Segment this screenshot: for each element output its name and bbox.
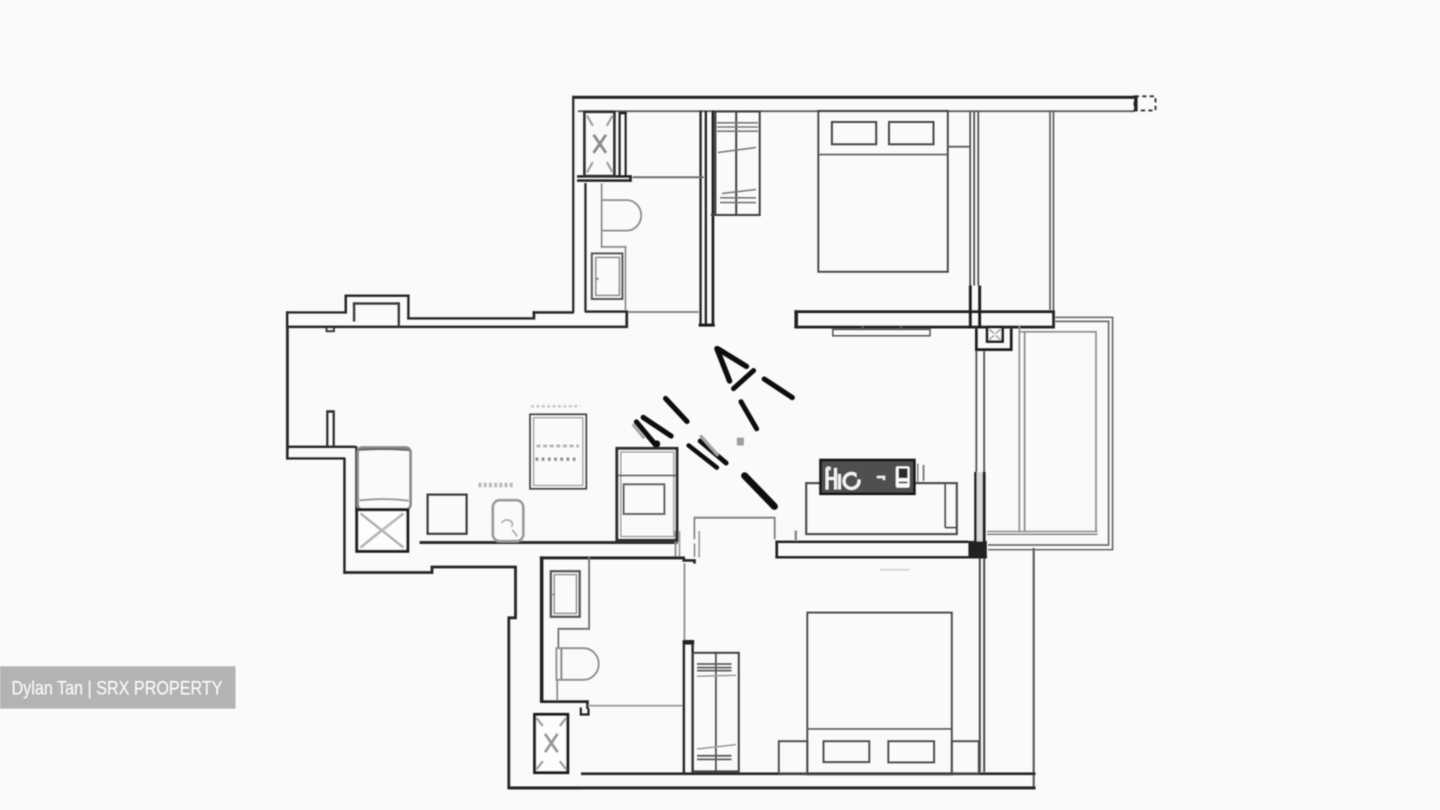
svg-text:Dylan Tan | SRX PROPERTY: Dylan Tan | SRX PROPERTY bbox=[12, 679, 223, 700]
